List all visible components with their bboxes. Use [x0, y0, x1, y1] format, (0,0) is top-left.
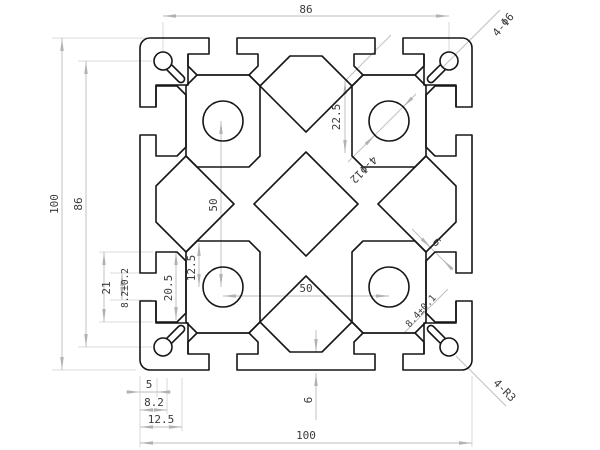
dim-5-label: 5	[146, 378, 153, 391]
dim-21-label: 21	[100, 281, 113, 294]
dim-left-86-label: 86	[72, 197, 85, 210]
note-corner-radius-label: 4-R3	[491, 377, 519, 405]
core-hole-bottom-right	[369, 267, 409, 307]
dim-left-100-label: 100	[48, 194, 61, 214]
corner-hole-bottom-left	[154, 338, 172, 356]
profile-outline	[140, 38, 472, 370]
corner-hole-top-left	[154, 52, 172, 70]
core-hole-bottom-left	[203, 267, 243, 307]
core-hole-top-left	[203, 101, 243, 141]
dim-50-horizontal-label: 50	[299, 282, 312, 295]
corner-hole-bottom-right	[440, 338, 458, 356]
drawing-canvas: 86 100 86 4-Φ6 22.5 4-Φ12 50 50 12.5 20.…	[0, 0, 600, 450]
dim-12-5-bottom-label: 12.5	[148, 413, 175, 426]
cavity-lobe-left	[156, 156, 234, 252]
cavity-lobe-top	[249, 56, 363, 132]
dim-6-bottom-wall-label: 6	[302, 397, 315, 404]
dim-22-5-label: 22.5	[330, 104, 343, 131]
dim-8-2-label: 8.2	[144, 396, 164, 409]
dim-top-86-label: 86	[299, 3, 312, 16]
dim-12-5-vertical-label: 12.5	[185, 255, 198, 282]
dim-20-5-label: 20.5	[162, 275, 175, 302]
technical-drawing: 86 100 86 4-Φ6 22.5 4-Φ12 50 50 12.5 20.…	[0, 0, 600, 450]
cavity-lobe-right	[378, 156, 456, 252]
dim-100-bottom-label: 100	[296, 429, 316, 442]
dim-50-vertical-label: 50	[207, 198, 220, 211]
note-corner-holes-label: 4-Φ6	[490, 10, 517, 39]
dim-8-4-tol-label: 8.4±0.1	[404, 293, 439, 330]
cavity-center-diamond	[254, 152, 358, 256]
outer-contour	[140, 38, 472, 370]
boss-top-left	[186, 75, 260, 167]
dim-8-2-tol-label: 8.2±0.2	[120, 268, 131, 308]
dimension-labels: 86 100 86 4-Φ6 22.5 4-Φ12 50 50 12.5 20.…	[48, 3, 518, 442]
